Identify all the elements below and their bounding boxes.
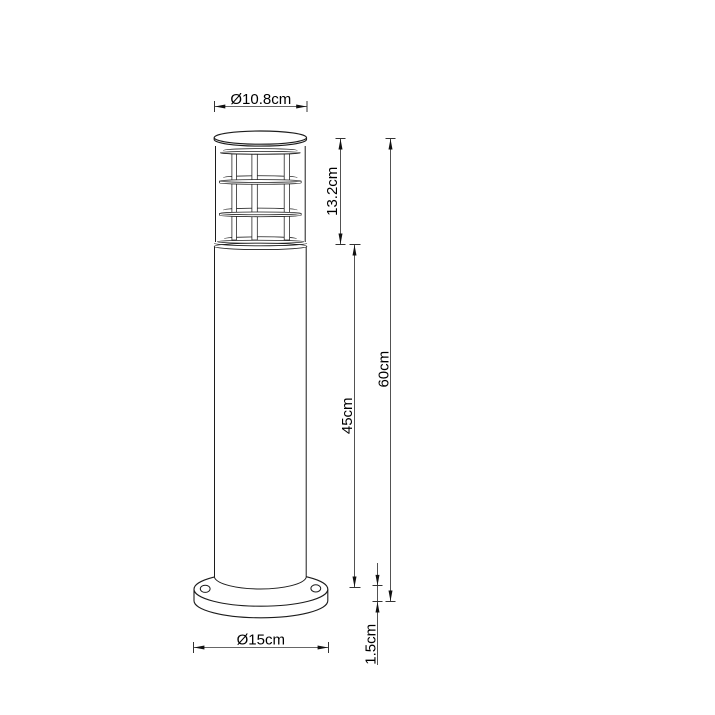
- svg-text:Ø15cm: Ø15cm: [237, 631, 285, 648]
- svg-text:45cm: 45cm: [339, 397, 356, 434]
- svg-text:Ø10.8cm: Ø10.8cm: [230, 91, 291, 108]
- svg-text:60cm: 60cm: [376, 351, 393, 388]
- svg-text:1.5cm: 1.5cm: [362, 624, 379, 665]
- svg-text:13.2cm: 13.2cm: [324, 167, 341, 216]
